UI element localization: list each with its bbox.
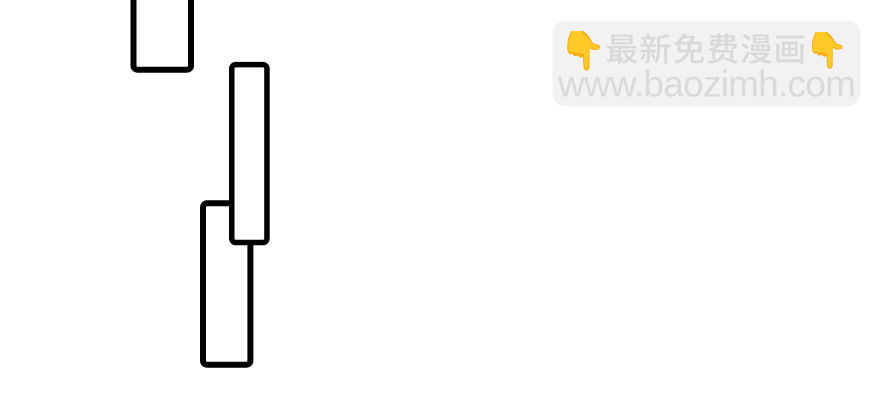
svg-text:www.baozimh.com: www.baozimh.com (557, 64, 855, 105)
